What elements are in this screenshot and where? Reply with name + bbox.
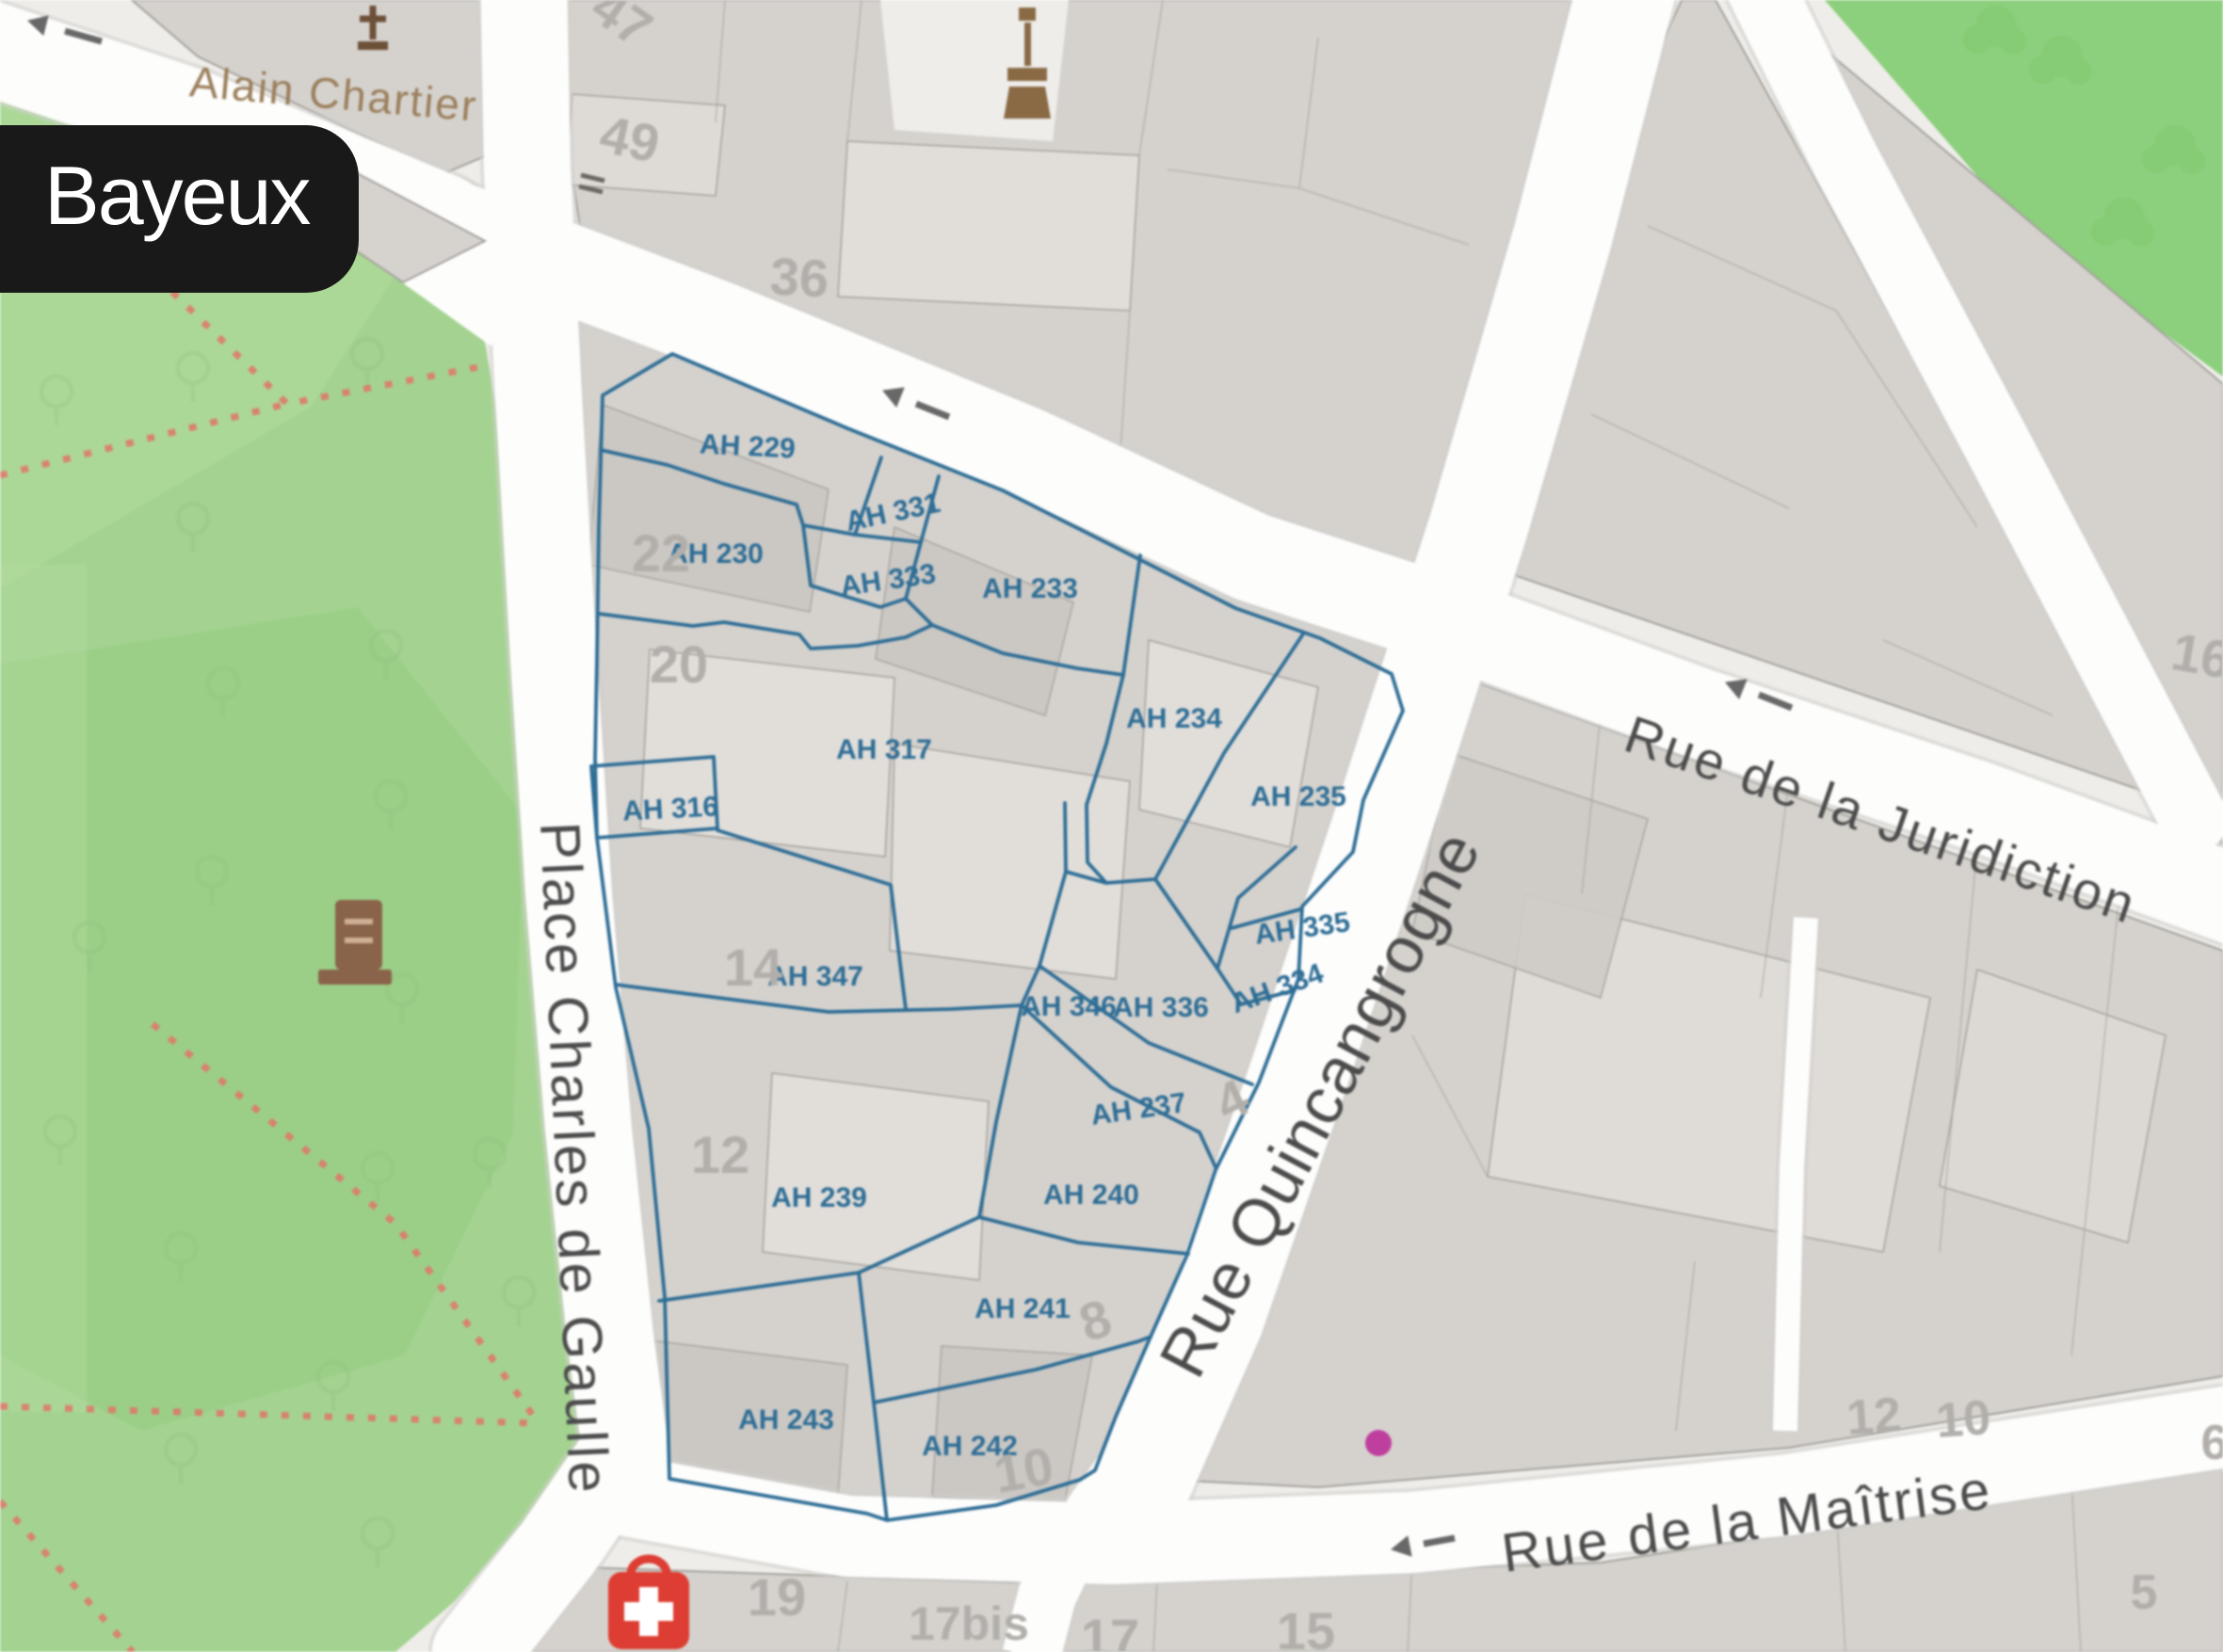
svg-text:AH 336: AH 336 (1113, 992, 1209, 1023)
svg-text:19: 19 (748, 1567, 806, 1627)
svg-text:AH 235: AH 235 (1250, 781, 1346, 812)
svg-text:16: 16 (2167, 621, 2223, 690)
svg-text:AH 241: AH 241 (975, 1293, 1071, 1324)
svg-text:AH 317: AH 317 (836, 734, 932, 765)
svg-text:17: 17 (1081, 1608, 1139, 1652)
svg-text:12: 12 (691, 1125, 749, 1184)
svg-text:49: 49 (595, 104, 665, 174)
svg-text:22: 22 (632, 523, 690, 583)
svg-text:AH 229: AH 229 (699, 428, 796, 464)
svg-text:15: 15 (1277, 1601, 1335, 1652)
svg-text:AH 234: AH 234 (1126, 703, 1222, 734)
svg-text:17bis: 17bis (909, 1597, 1029, 1650)
svg-text:AH 233: AH 233 (982, 573, 1078, 604)
svg-text:AH 316: AH 316 (621, 791, 718, 826)
svg-text:AH 243: AH 243 (738, 1404, 834, 1435)
svg-text:10: 10 (990, 1435, 1057, 1504)
svg-text:6: 6 (2201, 1416, 2223, 1470)
svg-text:10: 10 (1934, 1390, 1992, 1449)
svg-text:36: 36 (768, 246, 830, 308)
svg-text:AH 346: AH 346 (1021, 991, 1117, 1022)
svg-text:20: 20 (650, 634, 708, 694)
svg-text:AH 240: AH 240 (1043, 1179, 1139, 1211)
svg-text:12: 12 (1844, 1387, 1903, 1446)
svg-text:14: 14 (724, 938, 782, 997)
svg-text:AH 239: AH 239 (771, 1182, 867, 1213)
svg-text:5: 5 (2131, 1565, 2158, 1620)
